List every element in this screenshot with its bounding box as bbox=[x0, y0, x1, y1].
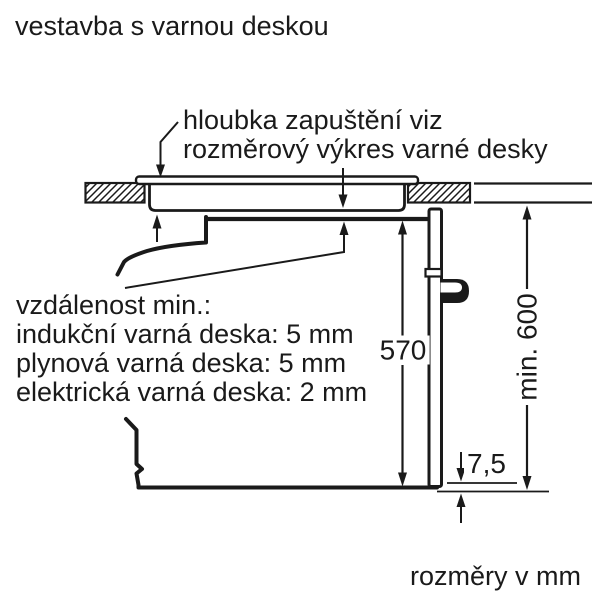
min-distance-heading: vzdálenost min.: bbox=[16, 291, 367, 320]
dim-570-label: 570 bbox=[377, 336, 430, 365]
door-handle bbox=[441, 279, 470, 303]
min-distance-note: vzdálenost min.: indukční varná deska: 5… bbox=[16, 291, 367, 407]
units-note: rozměry v mm bbox=[410, 562, 581, 591]
installation-diagram: vestavba s varnou deskou hloubka zapuště… bbox=[0, 0, 600, 600]
dim-600-label: min. 600 bbox=[513, 290, 542, 403]
recess-note: hloubka zapuštění viz rozměrový výkres v… bbox=[183, 106, 548, 164]
countertop-right-hatch bbox=[408, 183, 470, 203]
recess-note-line1: hloubka zapuštění viz bbox=[183, 106, 548, 135]
min-distance-item-induction: indukční varná deska: 5 mm bbox=[16, 320, 367, 349]
recess-depth-arrow bbox=[156, 122, 178, 178]
diagram-title: vestavba s varnou deskou bbox=[15, 12, 329, 41]
oven-bottom-profile bbox=[126, 419, 437, 488]
oven-door-notch bbox=[426, 269, 442, 277]
hob-top-plate bbox=[136, 177, 418, 185]
min-distance-leader-arrow bbox=[125, 222, 349, 289]
min-distance-item-gas: plynová varná deska: 5 mm bbox=[16, 349, 367, 378]
recess-note-line2: rozměrový výkres varné desky bbox=[183, 135, 548, 164]
countertop-left-hatch bbox=[86, 183, 145, 203]
oven-front-profile bbox=[118, 217, 207, 275]
hob-body bbox=[150, 183, 405, 211]
countertop-surface-lines bbox=[474, 184, 592, 203]
min-distance-item-electric: elektrická varná deska: 2 mm bbox=[16, 378, 367, 407]
hob-bottom-up-arrow-left bbox=[153, 215, 162, 243]
oven-door bbox=[429, 209, 442, 487]
dim-75-label: 7,5 bbox=[464, 449, 509, 478]
